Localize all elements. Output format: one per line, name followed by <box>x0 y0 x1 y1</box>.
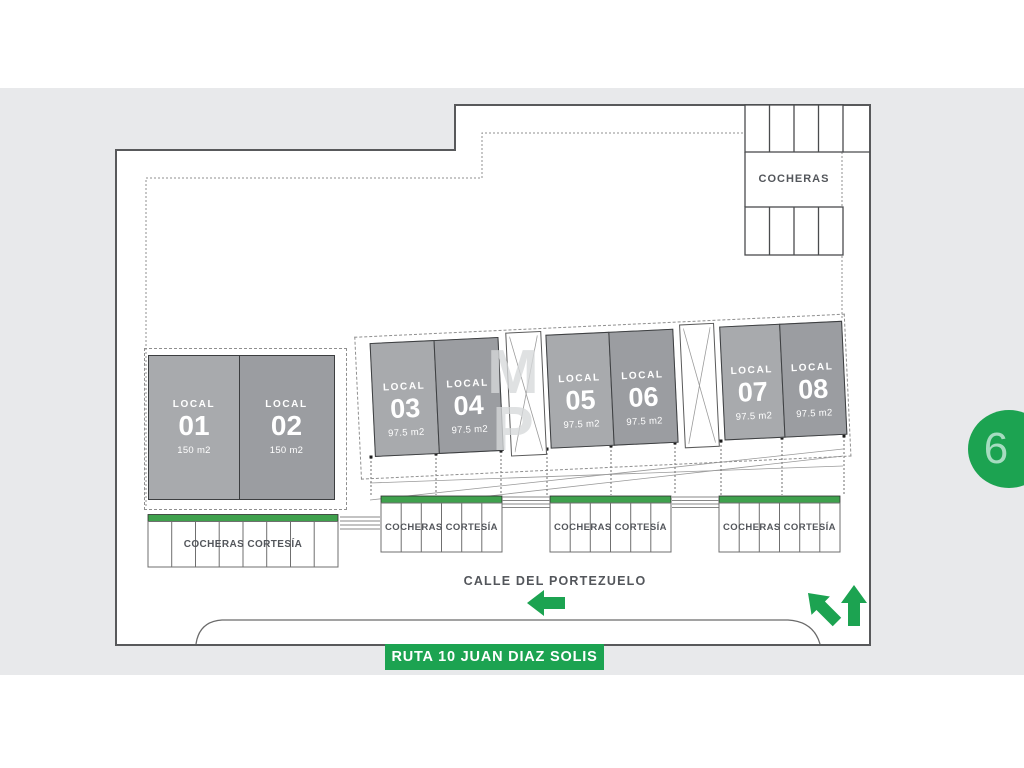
local-05-block: LOCAL 05 97.5 m2 <box>545 332 614 449</box>
local-06-number: 06 <box>628 381 659 412</box>
local-07-number: 07 <box>737 376 768 407</box>
locals-03-08-strip: LOCAL 03 97.5 m2 LOCAL 04 97.5 m2 LOCAL … <box>364 321 849 457</box>
local-08-number: 08 <box>797 373 828 404</box>
cortesia-label-4: COCHERAS CORTESÍA <box>719 503 840 552</box>
cortesia-label-1: COCHERAS CORTESÍA <box>148 521 338 567</box>
local-02-area: 150 m2 <box>270 445 304 456</box>
local-04-area: 97.5 m2 <box>451 423 488 436</box>
local-05-number: 05 <box>565 384 596 415</box>
cross-braced-module-1 <box>505 331 547 457</box>
street-name-label: CALLE DEL PORTEZUELO <box>430 574 680 588</box>
cortesia-label-3: COCHERAS CORTESÍA <box>550 503 671 552</box>
route-banner: RUTA 10 JUAN DIAZ SOLIS <box>385 644 604 670</box>
cocheras-label: COCHERAS <box>745 173 843 185</box>
local-07-area: 97.5 m2 <box>735 410 772 423</box>
local-01-block: LOCAL 01 150 m2 <box>148 355 240 500</box>
cortesia-label-2: COCHERAS CORTESÍA <box>381 503 502 552</box>
cross-braced-module-2 <box>679 323 720 449</box>
local-06-area: 97.5 m2 <box>626 415 663 428</box>
local-08-block: LOCAL 08 97.5 m2 <box>779 321 847 438</box>
local-03-area: 97.5 m2 <box>388 426 425 439</box>
local-03-number: 03 <box>389 392 420 423</box>
local-04-number: 04 <box>453 389 484 420</box>
local-01-number: 01 <box>178 411 209 441</box>
local-08-area: 97.5 m2 <box>796 407 833 420</box>
local-03-block: LOCAL 03 97.5 m2 <box>370 340 440 457</box>
local-01-area: 150 m2 <box>177 445 211 456</box>
local-06-block: LOCAL 06 97.5 m2 <box>608 329 678 446</box>
local-04-block: LOCAL 04 97.5 m2 <box>433 337 503 454</box>
local-02-number: 02 <box>271 411 302 441</box>
site-plan-image: LOCAL 01 150 m2 LOCAL 02 150 m2 LOCAL 03… <box>0 0 1024 768</box>
local-05-area: 97.5 m2 <box>563 418 600 431</box>
local-07-block: LOCAL 07 97.5 m2 <box>719 324 785 441</box>
local-02-block: LOCAL 02 150 m2 <box>239 355 335 500</box>
